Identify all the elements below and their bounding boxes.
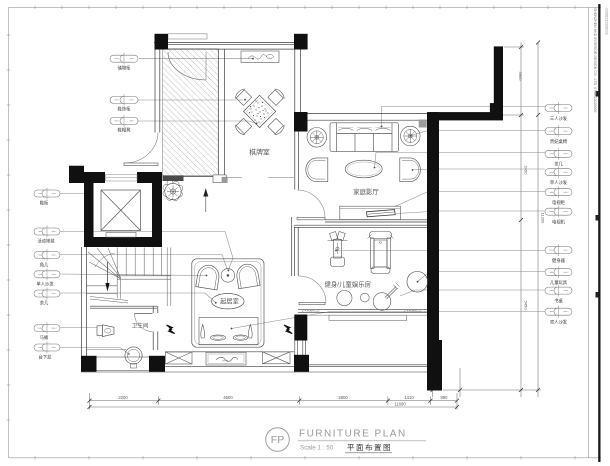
svg-text:电视机: 电视机 xyxy=(552,219,566,226)
svg-text:2450: 2450 xyxy=(524,166,529,176)
svg-text:茶几: 茶几 xyxy=(40,300,49,307)
svg-text:11600: 11600 xyxy=(394,402,406,407)
svg-text:Scale 1 : 50: Scale 1 : 50 xyxy=(300,445,334,452)
svg-text:11200: 11200 xyxy=(541,213,546,225)
svg-text:890: 890 xyxy=(441,395,449,400)
svg-text:单人沙发: 单人沙发 xyxy=(36,280,54,287)
svg-text:2800: 2800 xyxy=(338,395,348,400)
svg-text:书桌: 书桌 xyxy=(554,297,563,304)
svg-text:1410: 1410 xyxy=(404,395,414,400)
svg-text:角几: 角几 xyxy=(40,262,49,269)
svg-text:鞋帽凳: 鞋帽凳 xyxy=(118,127,132,134)
svg-text:健身/儿童娱乐房: 健身/儿童娱乐房 xyxy=(325,280,372,289)
svg-text:棋牌室: 棋牌室 xyxy=(249,148,270,157)
svg-text:儿童玩具: 儿童玩具 xyxy=(550,279,568,286)
svg-text:双人沙发: 双人沙发 xyxy=(550,319,568,326)
svg-text:健身器: 健身器 xyxy=(552,257,566,264)
svg-text:02282ZZ0226000: 02282ZZ0226000 xyxy=(605,8,609,35)
svg-text:活动地毯: 活动地毯 xyxy=(37,238,55,245)
svg-text:家庭影厅: 家庭影厅 xyxy=(353,187,379,196)
svg-text:L-XX0B0C2L: L-XX0B0C2L xyxy=(404,309,422,313)
svg-text:SHENZHEN HKD INTERIOR DESIGN C: SHENZHEN HKD INTERIOR DESIGN CO., LTD. 0… xyxy=(593,8,597,112)
svg-text:平面布置图: 平面布置图 xyxy=(347,442,392,452)
svg-text:三人沙发: 三人沙发 xyxy=(550,115,568,122)
svg-text:储物柜: 储物柜 xyxy=(118,65,132,72)
svg-text:L-XX0B0C2L: L-XX0B0C2L xyxy=(302,309,320,313)
svg-text:FP: FP xyxy=(271,434,284,446)
svg-text:4500: 4500 xyxy=(223,395,233,400)
svg-text:单人沙发: 单人沙发 xyxy=(550,179,568,186)
svg-text:2200: 2200 xyxy=(118,395,128,400)
svg-text:贵妃桌椅: 贵妃桌椅 xyxy=(550,138,568,145)
svg-text:卫生间: 卫生间 xyxy=(132,322,149,330)
svg-text:鞋柜: 鞋柜 xyxy=(40,200,49,207)
svg-text:FURNITURE PLAN: FURNITURE PLAN xyxy=(299,429,407,440)
svg-text:茶几: 茶几 xyxy=(554,161,563,168)
svg-text:5450: 5450 xyxy=(524,301,529,311)
svg-text:起居室: 起居室 xyxy=(220,298,239,306)
svg-text:电视柜: 电视柜 xyxy=(552,199,566,206)
svg-text:马桶: 马桶 xyxy=(40,334,49,341)
svg-text:台下盆: 台下盆 xyxy=(39,354,53,361)
svg-text:鞋饰柜: 鞋饰柜 xyxy=(118,106,132,113)
svg-text:3600: 3600 xyxy=(518,72,523,82)
